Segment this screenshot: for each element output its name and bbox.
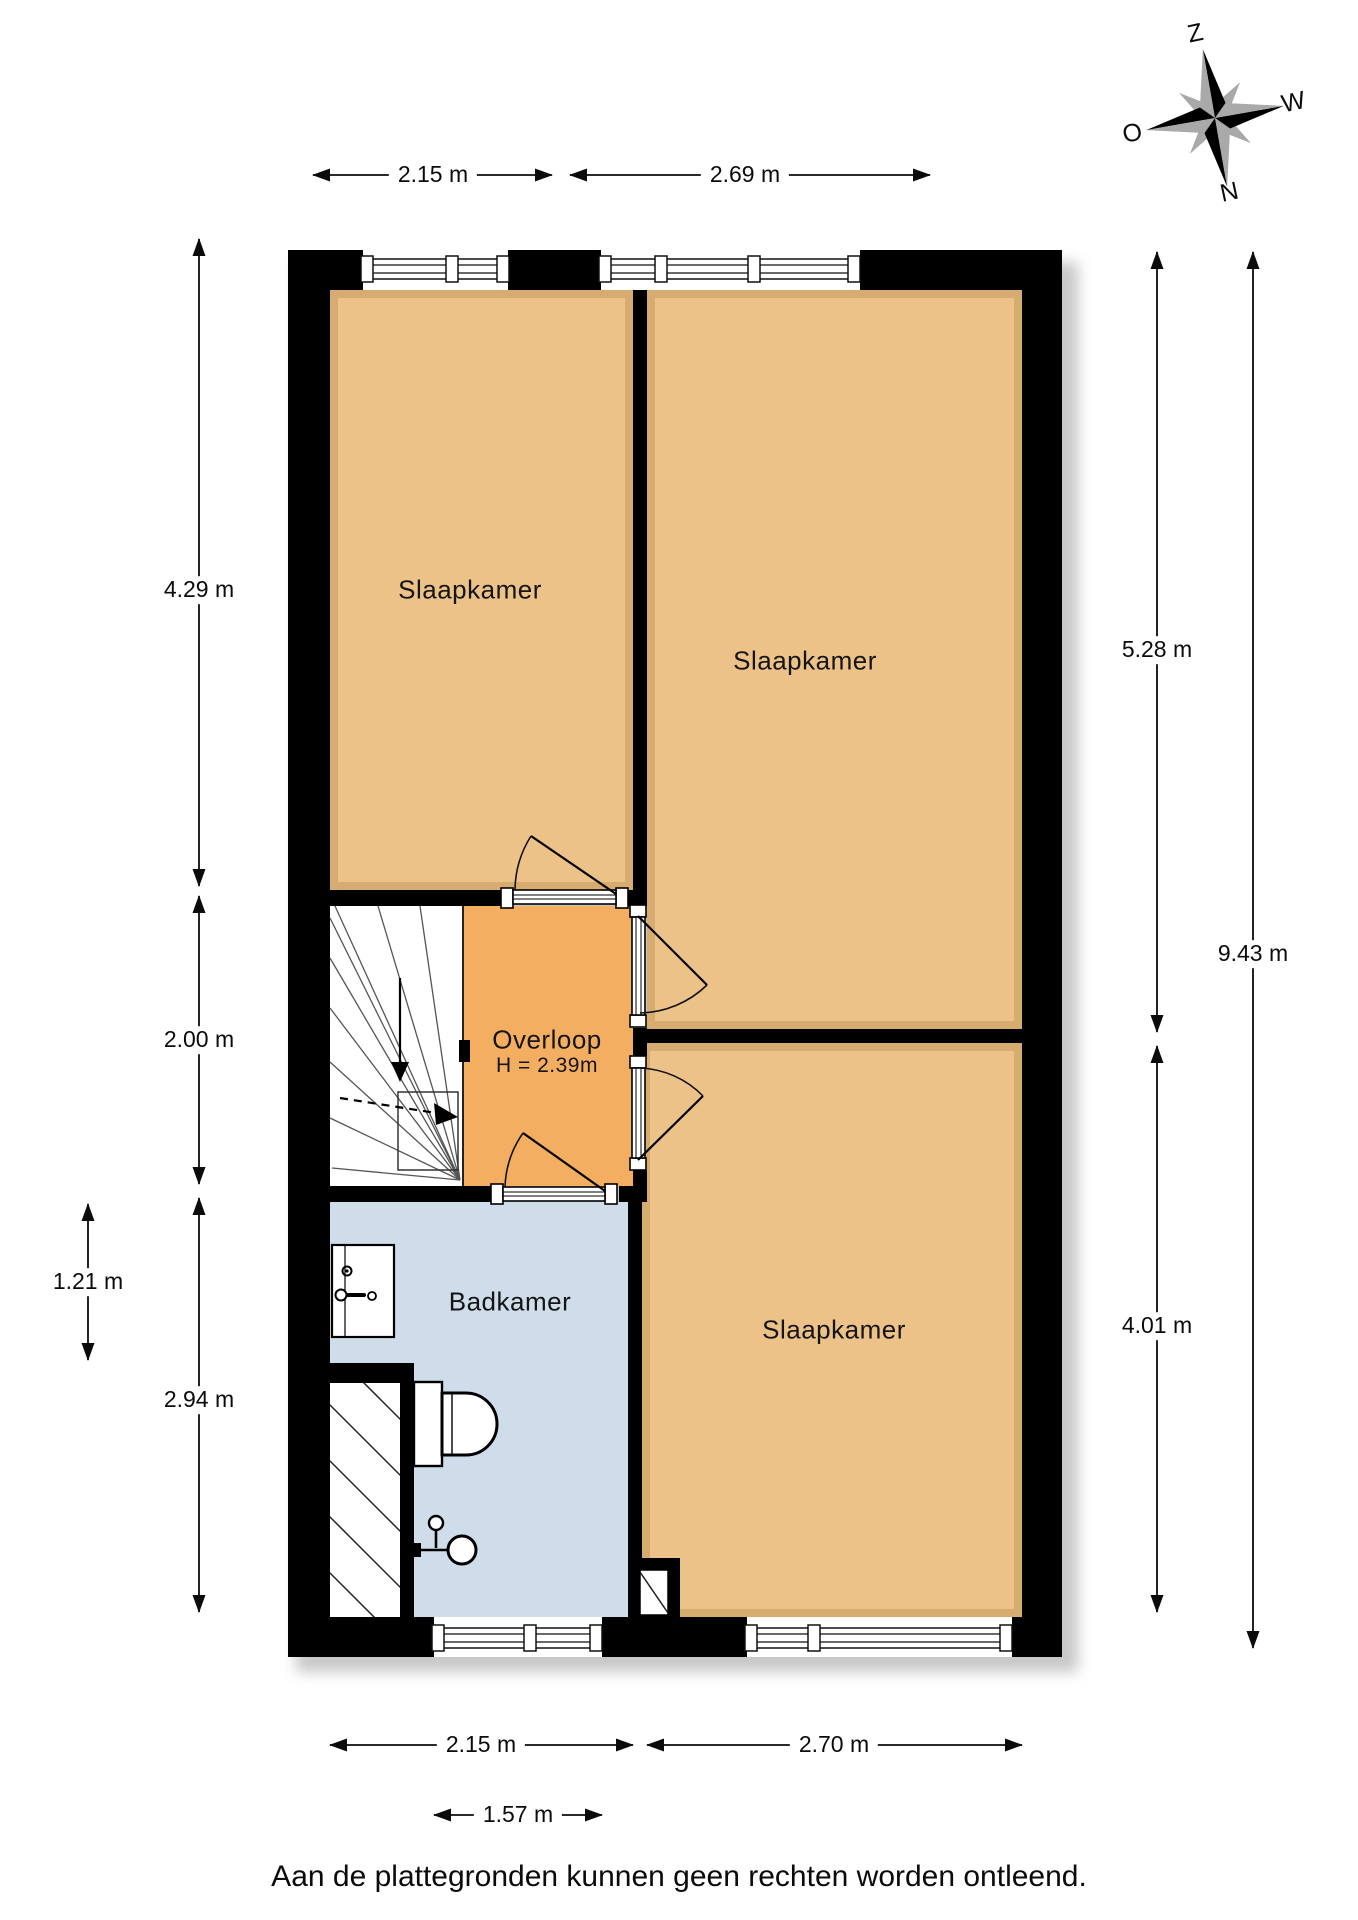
window-bedroom-bottom xyxy=(745,1617,1012,1657)
dim-right-1: 5.28 m xyxy=(1113,636,1201,664)
wall-left xyxy=(288,250,330,1657)
wall-right xyxy=(1022,250,1062,1657)
wall-bathroom-top-right xyxy=(619,1186,647,1202)
dim-right-3: 4.01 m xyxy=(1113,1312,1201,1340)
duct-shaft xyxy=(640,1570,668,1615)
dim-bottom-1: 2.15 m xyxy=(437,1731,525,1759)
disclaimer-text: Aan de plattegronden kunnen geen rechten… xyxy=(271,1860,1087,1894)
dim-left-3: 1.21 m xyxy=(44,1268,132,1296)
window-top-left xyxy=(361,250,509,290)
compass-rose: Z W O N xyxy=(1105,8,1325,228)
compass-star xyxy=(1134,37,1296,199)
wall-shower-right xyxy=(400,1383,414,1617)
room-label-landing: Overloop xyxy=(492,1025,602,1056)
room-label-bedroom-top-right: Slaapkamer xyxy=(733,646,877,677)
dim-left-1: 4.29 m xyxy=(155,576,243,604)
room-label-bedroom-bottom-right: Slaapkamer xyxy=(762,1315,906,1346)
wall-bathroom-top xyxy=(330,1186,493,1202)
dim-right-2: 9.43 m xyxy=(1209,940,1297,968)
stair-newel xyxy=(459,1040,470,1062)
window-top-right xyxy=(599,250,860,290)
room-label-bedroom-top-left: Slaapkamer xyxy=(398,575,542,606)
wall-bedroom-landing xyxy=(330,890,503,906)
compass-label-north: N xyxy=(1218,177,1241,208)
wall-landing-stub xyxy=(633,1028,647,1056)
dim-left-2: 2.00 m xyxy=(155,1026,243,1054)
room-label-bathroom: Badkamer xyxy=(449,1287,572,1318)
dim-bottom-2: 2.70 m xyxy=(790,1731,878,1759)
wall-shower-stub xyxy=(330,1363,414,1383)
compass-label-east: O xyxy=(1120,117,1145,148)
dim-top-1: 2.15 m xyxy=(389,161,477,189)
wall-between-right-bedrooms xyxy=(647,1029,1022,1043)
room-label-landing-height: H = 2.39m xyxy=(496,1054,598,1078)
floorplan-drawing xyxy=(0,0,1358,1920)
compass-label-west: W xyxy=(1279,86,1308,118)
floorplan-page: Z W O N Slaapkamer Slaapkamer Slaapkamer… xyxy=(0,0,1358,1920)
sink xyxy=(332,1245,394,1337)
dim-top-2: 2.69 m xyxy=(701,161,789,189)
wall-bathroom-right xyxy=(628,1202,642,1558)
window-bathroom xyxy=(432,1617,602,1657)
compass-label-south: Z xyxy=(1185,18,1206,49)
dim-bottom-3: 1.57 m xyxy=(474,1801,562,1829)
dim-left-4: 2.94 m xyxy=(155,1386,243,1414)
wall-bedroom-landing-right xyxy=(628,890,647,906)
wall-between-top-bedrooms xyxy=(633,290,647,905)
